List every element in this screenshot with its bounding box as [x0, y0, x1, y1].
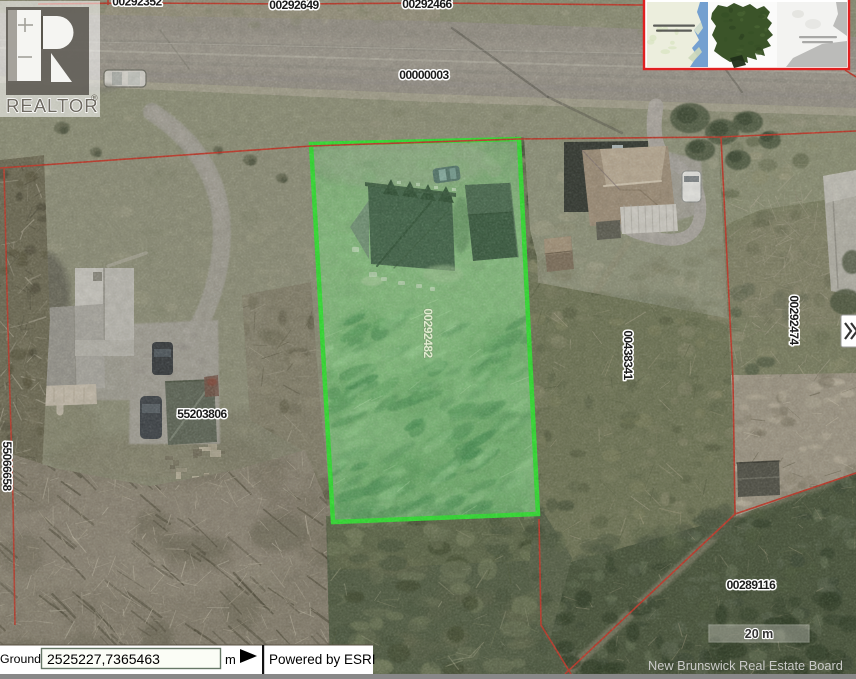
svg-text:00292649: 00292649	[269, 0, 319, 12]
svg-text:55203806: 55203806	[177, 407, 227, 421]
svg-text:Powered by ESRI: Powered by ESRI	[269, 652, 376, 667]
svg-text:m: m	[225, 652, 236, 667]
svg-text:00292474: 00292474	[787, 295, 801, 345]
svg-text:New Brunswick Real Estate Boar: New Brunswick Real Estate Board	[648, 658, 843, 673]
svg-text:00000003: 00000003	[399, 68, 449, 82]
svg-text:55066658: 55066658	[0, 441, 14, 491]
svg-text:20 m: 20 m	[745, 627, 774, 641]
svg-text:REALTOR: REALTOR	[6, 95, 99, 116]
svg-text:00289116: 00289116	[727, 578, 777, 592]
svg-text:Ground: Ground	[0, 652, 41, 666]
svg-text:00292482: 00292482	[421, 308, 435, 358]
svg-text:00292466: 00292466	[402, 0, 452, 11]
svg-text:2525227,7365463: 2525227,7365463	[47, 651, 160, 667]
svg-text:00438341: 00438341	[621, 330, 635, 380]
svg-text:00292352: 00292352	[112, 0, 162, 9]
svg-text:®: ®	[91, 93, 98, 103]
